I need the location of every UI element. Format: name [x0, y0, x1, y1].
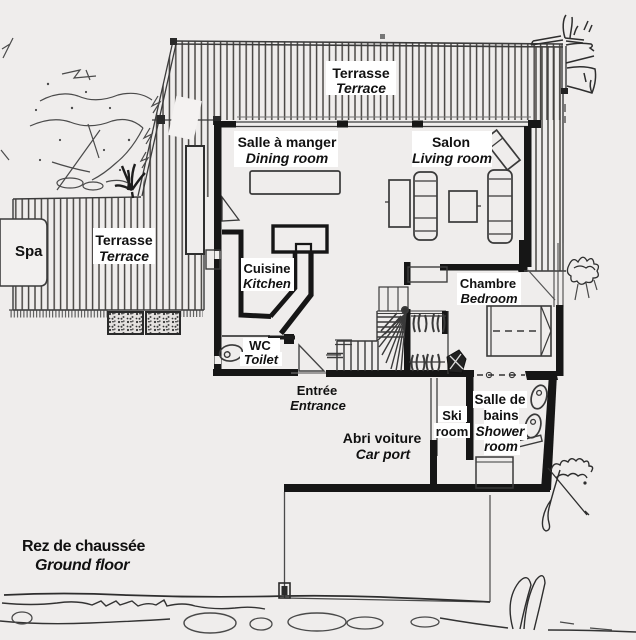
- svg-text:Terrace: Terrace: [99, 248, 149, 264]
- svg-text:Chambre: Chambre: [460, 276, 516, 291]
- svg-text:Living room: Living room: [412, 150, 492, 166]
- svg-text:Entrée: Entrée: [297, 383, 337, 398]
- svg-text:Abri voiture: Abri voiture: [343, 430, 422, 446]
- svg-text:Terrasse: Terrasse: [95, 232, 153, 248]
- svg-text:Car port: Car port: [356, 446, 412, 462]
- svg-text:Salle à manger: Salle à manger: [238, 134, 337, 150]
- svg-text:Ground floor: Ground floor: [35, 557, 130, 574]
- svg-text:Bedroom: Bedroom: [460, 291, 518, 306]
- svg-text:Ski: Ski: [442, 408, 462, 423]
- svg-text:room: room: [436, 424, 469, 439]
- svg-text:Salle de: Salle de: [474, 392, 526, 407]
- svg-text:Terrasse: Terrasse: [332, 65, 390, 81]
- svg-text:room: room: [484, 439, 518, 454]
- svg-text:WC: WC: [249, 338, 271, 353]
- svg-text:Cuisine: Cuisine: [244, 261, 291, 276]
- svg-text:Salon: Salon: [432, 134, 470, 150]
- svg-text:Spa: Spa: [15, 243, 43, 260]
- svg-text:Terrace: Terrace: [336, 80, 386, 96]
- svg-text:Shower: Shower: [476, 424, 526, 439]
- svg-text:Entrance: Entrance: [290, 398, 346, 413]
- svg-text:Kitchen: Kitchen: [243, 276, 291, 291]
- svg-text:bains: bains: [483, 408, 518, 423]
- svg-text:Toilet: Toilet: [244, 352, 279, 367]
- svg-text:Dining room: Dining room: [246, 150, 328, 166]
- svg-text:Rez de chaussée: Rez de chaussée: [22, 538, 145, 555]
